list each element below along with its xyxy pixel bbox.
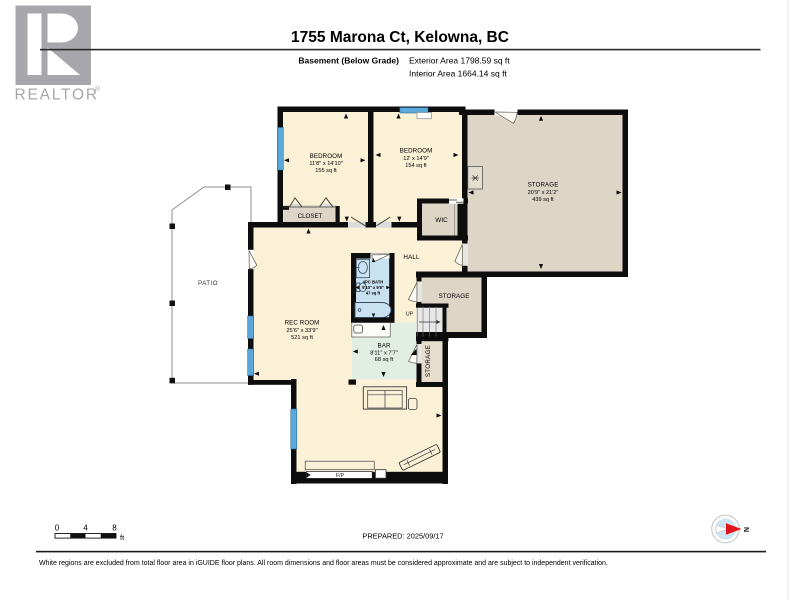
svg-text:White regions are excluded fro: White regions are excluded from total fl… [39,560,608,567]
svg-text:5'10" x 9'8": 5'10" x 9'8" [362,285,384,290]
svg-text:Basement (Below Grade): Basement (Below Grade) [298,56,399,66]
svg-text:BEDROOM: BEDROOM [310,153,343,160]
svg-text:HALL: HALL [403,254,420,261]
svg-text:12' x 14'9": 12' x 14'9" [403,156,429,162]
svg-text:4PC BATH: 4PC BATH [363,279,384,284]
svg-text:11'8" x 14'10": 11'8" x 14'10" [309,161,342,167]
svg-text:4: 4 [83,524,88,533]
svg-text:8: 8 [112,524,117,533]
svg-text:CLOSET: CLOSET [298,213,323,220]
svg-text:BEDROOM: BEDROOM [400,148,433,155]
svg-text:0: 0 [55,524,60,533]
svg-text:68 sq ft: 68 sq ft [375,357,394,363]
svg-text:STORAGE: STORAGE [439,293,470,300]
svg-text:154 sq ft: 154 sq ft [405,163,427,169]
svg-text:25'6" x 33'9": 25'6" x 33'9" [286,328,317,334]
svg-text:8'11" x 7'7": 8'11" x 7'7" [370,350,398,356]
svg-text:PATIO: PATIO [198,280,218,287]
svg-text:Interior Area 1664.14 sq ft: Interior Area 1664.14 sq ft [409,69,507,79]
svg-text:N: N [742,527,749,532]
svg-text:20'9" x 21'2": 20'9" x 21'2" [528,190,559,196]
svg-text:STORAGE: STORAGE [425,345,432,377]
svg-text:PREPARED: 2025/09/17: PREPARED: 2025/09/17 [362,532,443,541]
svg-text:1755 Marona Ct, Kelowna, BC: 1755 Marona Ct, Kelowna, BC [291,29,509,46]
svg-text:®: ® [95,85,101,93]
svg-text:WIC: WIC [435,217,448,224]
svg-text:155 sq ft: 155 sq ft [315,168,337,174]
svg-text:F/P: F/P [336,473,345,479]
svg-text:UP: UP [406,312,414,318]
svg-text:REALTOR: REALTOR [15,87,99,104]
svg-text:439 sq ft: 439 sq ft [532,197,554,203]
svg-text:BAR: BAR [377,343,390,350]
svg-text:521 sq ft: 521 sq ft [291,335,313,341]
svg-text:Exterior Area 1798.59 sq ft: Exterior Area 1798.59 sq ft [409,56,510,66]
svg-text:47 sq ft: 47 sq ft [366,290,381,295]
svg-text:REC ROOM: REC ROOM [285,319,320,326]
svg-text:STORAGE: STORAGE [528,182,559,189]
